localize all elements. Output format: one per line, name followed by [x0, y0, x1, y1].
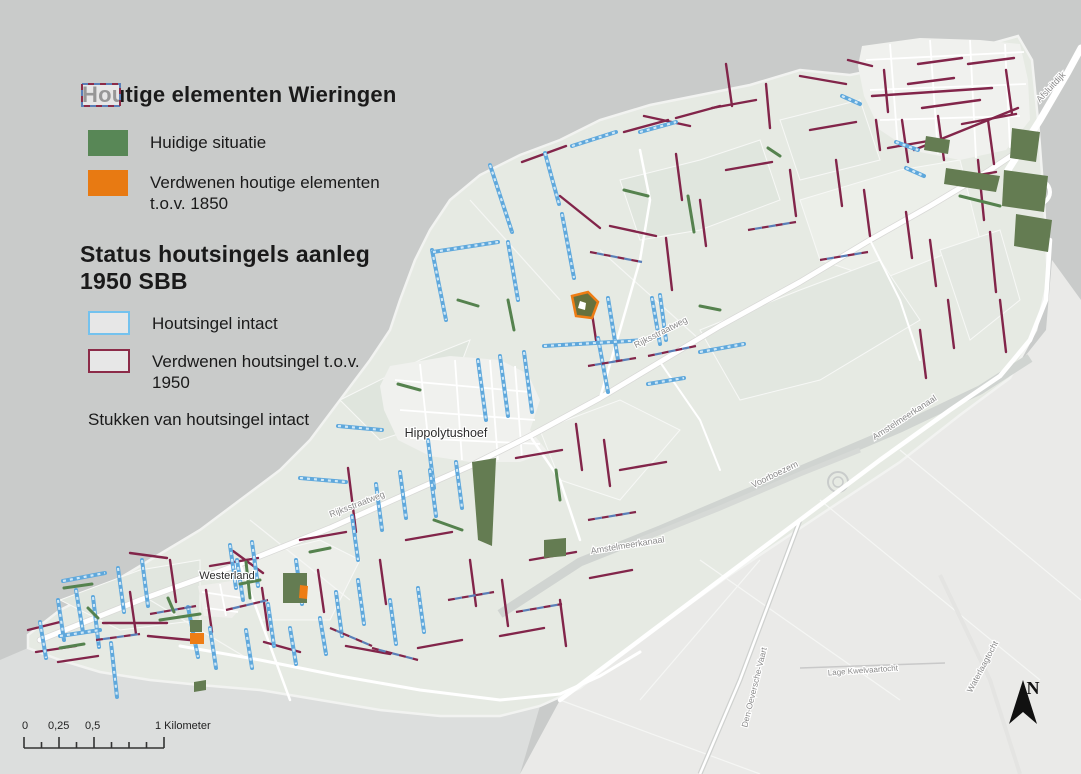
scale-mark-025: 0,25 [48, 720, 69, 732]
legend-label: Stukken van houtsingel intact [88, 407, 309, 430]
scale-mark-05: 0,5 [85, 720, 100, 732]
legend: Houtige elementen Wieringen Huidige situ… [80, 82, 420, 444]
north-arrow-icon [1003, 678, 1043, 726]
swatch-verdwenen-elementen [88, 170, 128, 196]
swatch-stukken-intact [80, 82, 122, 108]
huidige-situatie-polygon [194, 680, 206, 692]
legend-title-houtige-elementen: Houtige elementen Wieringen [82, 82, 420, 108]
scale-mark-0: 0 [22, 720, 28, 732]
huidige-situatie-polygon [1002, 170, 1048, 212]
huidige-situatie-polygon [1010, 128, 1040, 162]
legend-label: Verdwenen houtsingel t.o.v. 1950 [152, 349, 392, 394]
legend-label: Huidige situatie [150, 130, 266, 153]
huidige-situatie-polygon [190, 620, 202, 632]
legend-label: Houtsingel intact [152, 311, 278, 334]
legend-label: Verdwenen houtige elementen t.o.v. 1850 [150, 170, 390, 215]
north-arrow: N [1003, 678, 1063, 758]
huidige-situatie-polygon [544, 538, 566, 558]
legend-item-stukken-intact: Stukken van houtsingel intact [88, 407, 420, 430]
map-page: HippolytushoefWesterlandRijksstraatwegRi… [0, 0, 1081, 774]
huidige-situatie-polygon [299, 585, 308, 599]
legend-item-verdwenen-houtsingel: Verdwenen houtsingel t.o.v. 1950 [88, 349, 420, 394]
legend-item-verdwenen-houtige-elementen: Verdwenen houtige elementen t.o.v. 1850 [88, 170, 420, 215]
legend-item-huidige-situatie: Huidige situatie [88, 130, 420, 156]
swatch-houtsingel-intact [88, 311, 130, 335]
scale-bar-ticks [22, 734, 222, 750]
huidige-situatie-polygon [1014, 214, 1052, 252]
scale-unit: 1 Kilometer [155, 720, 211, 732]
swatch-verdwenen-houtsingel [88, 349, 130, 373]
place-label: Westerland [199, 570, 254, 582]
huidige-situatie-polygon [190, 633, 204, 644]
legend-item-houtsingel-intact: Houtsingel intact [88, 311, 420, 335]
legend-title-status-houtsingels: Status houtsingels aanleg 1950 SBB [80, 241, 420, 295]
scale-bar: 0 0,25 0,5 1 Kilometer [22, 720, 232, 762]
swatch-huidige-situatie [88, 130, 128, 156]
